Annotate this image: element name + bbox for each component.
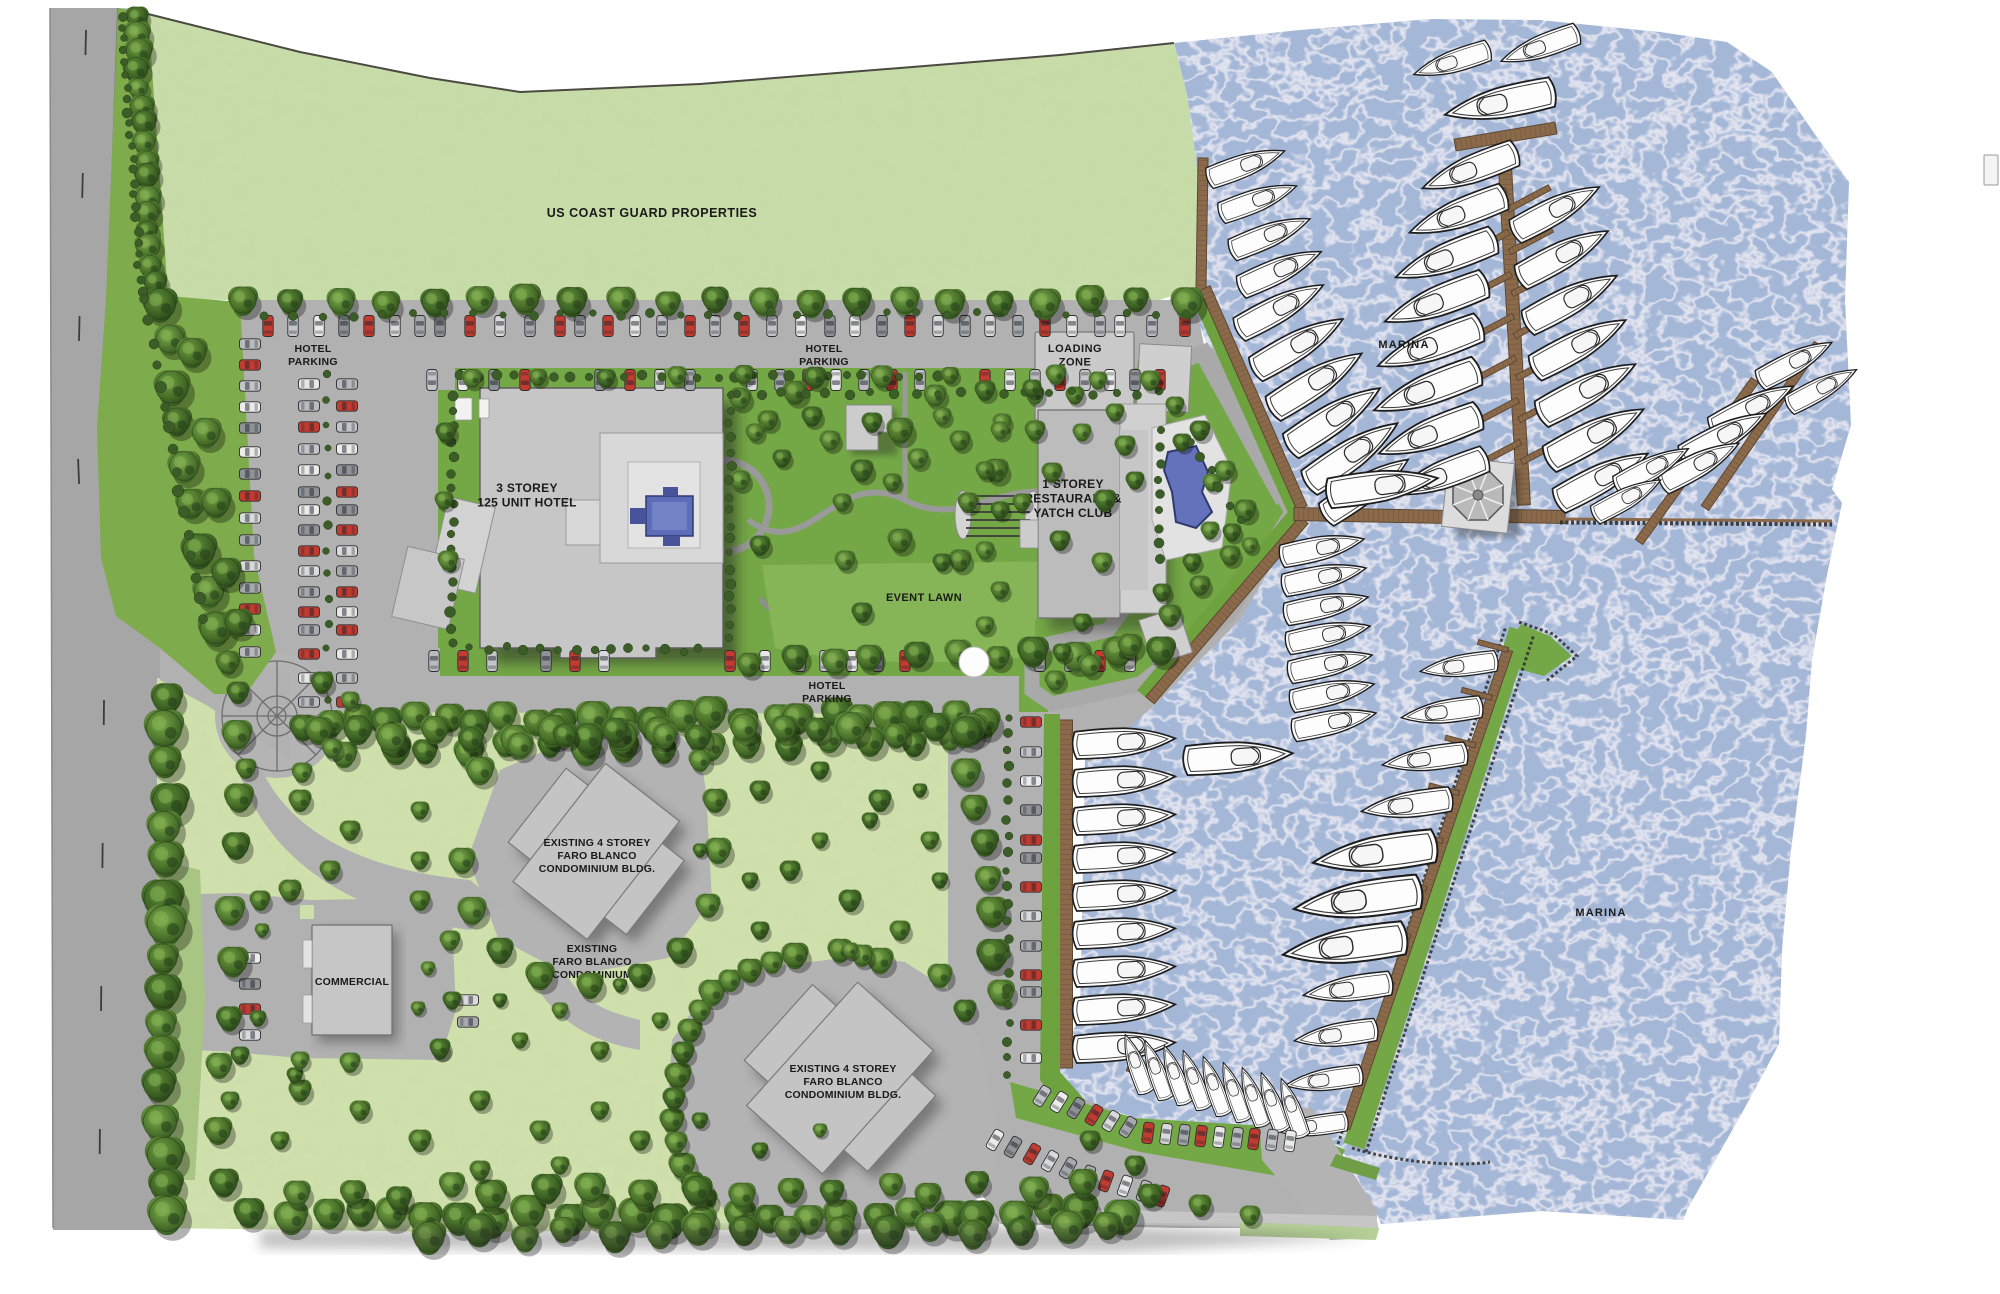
svg-text:HOTELPARKING: HOTELPARKING	[799, 343, 849, 368]
svg-text:MARINA: MARINA	[1378, 339, 1429, 351]
svg-text:US COAST GUARD PROPERTIES: US COAST GUARD PROPERTIES	[547, 206, 757, 220]
svg-text:HOTELPARKING: HOTELPARKING	[802, 680, 852, 705]
svg-text:COMMERCIAL: COMMERCIAL	[315, 976, 390, 988]
svg-text:EVENT LAWN: EVENT LAWN	[886, 592, 962, 604]
svg-text:HOTELPARKING: HOTELPARKING	[288, 343, 338, 368]
svg-text:MARINA: MARINA	[1575, 907, 1626, 919]
